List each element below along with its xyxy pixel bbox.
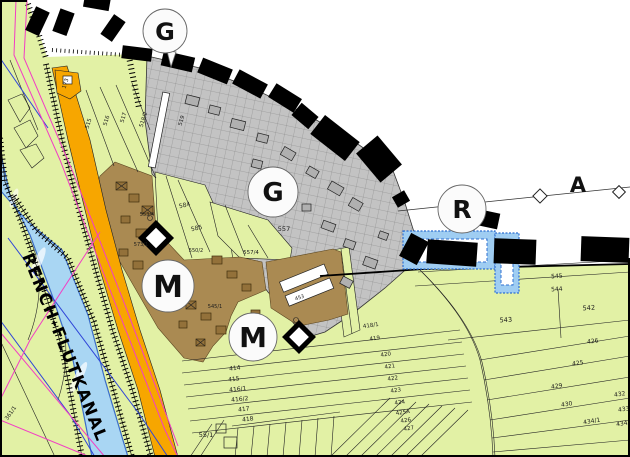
parcel-number-label: 557 [278, 225, 290, 233]
zone-letter-m-lower: M [239, 321, 267, 354]
parcel-number-label: 544 [551, 286, 563, 294]
parcel-number-label: 553/4 [140, 212, 154, 218]
map-canvas: G G R M M A 173515516517518/251958458555… [0, 0, 630, 457]
zone-letter-r: R [452, 195, 471, 224]
parcel-number-label: 418 [242, 415, 254, 423]
parcel-number-label: 415 [228, 375, 240, 383]
zone-letter-g-top: G [155, 18, 175, 46]
parcel-number-label: 425 [572, 359, 584, 367]
parcel-number-label: 550/2 [189, 248, 203, 254]
parcel-number-label: 557/4 [243, 250, 259, 256]
zone-letter-m-upper: M [153, 270, 183, 305]
parcel-number-label: 542 [582, 304, 595, 313]
outer-area-line [398, 187, 630, 211]
parcel-number-label: 545/1 [208, 304, 222, 310]
zoning-plan-map: G G R M M A 173515516517518/251958458555… [0, 0, 630, 457]
parcel-number-label: 414 [229, 364, 241, 372]
area-label-a: A [570, 173, 587, 197]
small-diamond-left [533, 189, 547, 203]
parcel-number-label: 545 [551, 273, 563, 281]
parcel-number-label: 417 [238, 405, 250, 413]
parcel-number-label: 573/1 [134, 242, 148, 248]
parcel-number-label: 55/1 [199, 431, 214, 439]
parcel-number-label: 426 [587, 337, 599, 345]
parcel-number-label: 543 [499, 316, 512, 325]
zone-letter-g-center: G [262, 178, 283, 208]
